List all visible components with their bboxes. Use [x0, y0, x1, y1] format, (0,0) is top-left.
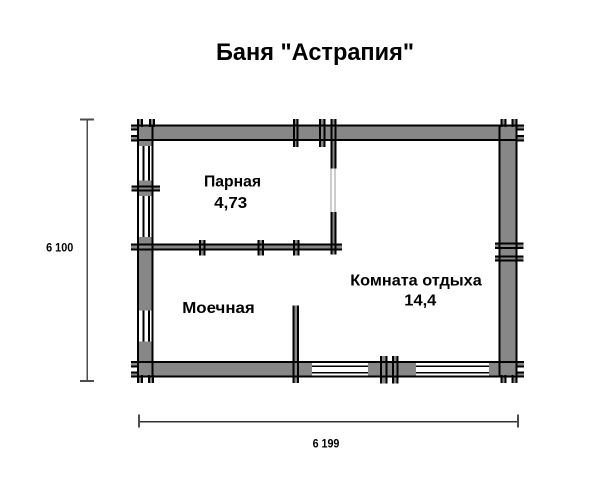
svg-text:6 100: 6 100: [46, 241, 73, 255]
svg-text:Моечная: Моечная: [182, 300, 255, 317]
svg-text:4,73: 4,73: [214, 195, 247, 212]
svg-text:Парная: Парная: [204, 173, 261, 190]
svg-text:Баня "Астрапия": Баня "Астрапия": [216, 39, 414, 66]
svg-text:Комната отдыха: Комната отдыха: [350, 272, 482, 289]
svg-text:6 199: 6 199: [313, 437, 340, 451]
svg-text:14,4: 14,4: [404, 293, 436, 310]
